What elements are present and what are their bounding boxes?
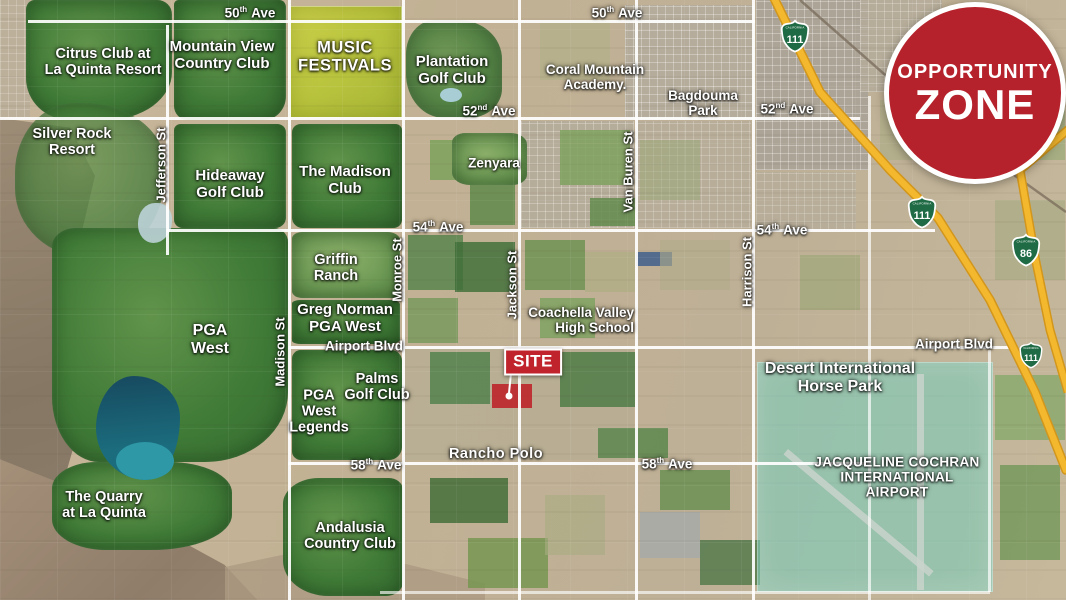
map-canvas: 50thAve 50thAve 52ndAve 52ndAve 54thAve … xyxy=(0,0,1066,600)
road-minor-east xyxy=(868,96,871,600)
label-rancho-polo: Rancho Polo xyxy=(449,446,543,462)
svg-text:CALIFORNIA: CALIFORNIA xyxy=(1017,239,1036,243)
label-citrus-club: Citrus Club atLa Quinta Resort xyxy=(45,46,162,78)
label-silver-rock: Silver RockResort xyxy=(33,126,112,158)
label-52nd-ave-west: 52ndAve xyxy=(462,103,515,118)
highway-111-shield-middle: CALIFORNIA 111 xyxy=(906,195,938,229)
label-coral-mountain-academy: Coral MountainAcademy. xyxy=(546,62,644,92)
label-quarry: The Quarryat La Quinta xyxy=(62,489,146,521)
svg-text:CALIFORNIA: CALIFORNIA xyxy=(786,25,805,29)
urban-area xyxy=(756,0,868,170)
label-mountain-view: Mountain ViewCountry Club xyxy=(170,39,275,73)
road-airport-east-edge xyxy=(988,350,991,592)
road-south-boundary xyxy=(380,591,990,594)
label-jackson-st: Jackson St xyxy=(506,251,521,320)
label-madison-club: The MadisonClub xyxy=(299,164,391,198)
opportunity-zone-badge: OPPORTUNITY ZONE xyxy=(884,2,1066,184)
label-airport-blvd-east: Airport Blvd xyxy=(915,336,993,351)
label-music-festivals: MUSICFESTIVALS xyxy=(298,39,392,76)
label-monroe-st: Monroe St xyxy=(391,238,406,302)
svg-text:111: 111 xyxy=(787,34,804,46)
label-griffin-ranch: GriffinRanch xyxy=(314,252,358,284)
road-54th-ave xyxy=(167,229,935,232)
svg-text:CALIFORNIA: CALIFORNIA xyxy=(1023,347,1039,350)
label-plantation: PlantationGolf Club xyxy=(416,54,489,88)
label-hideaway: HideawayGolf Club xyxy=(195,168,264,202)
label-zenyara: Zenyara xyxy=(468,155,520,170)
svg-text:86: 86 xyxy=(1020,248,1032,260)
label-bagdouma-park: BagdoumaPark xyxy=(668,88,738,118)
label-airport-blvd-west: Airport Blvd xyxy=(325,338,403,353)
label-pga-west: PGAWest xyxy=(191,322,229,358)
svg-text:CALIFORNIA: CALIFORNIA xyxy=(913,201,932,205)
label-coachella-valley-hs: Coachella ValleyHigh School xyxy=(528,305,634,335)
label-54th-ave-west: 54thAve xyxy=(413,219,464,234)
label-van-buren-st: Van Buren St xyxy=(622,132,637,213)
svg-text:111: 111 xyxy=(914,210,931,222)
label-madison-st: Madison St xyxy=(274,317,289,386)
label-jacqueline-cochran-airport: JACQUELINE COCHRANINTERNATIONALAIRPORT xyxy=(814,454,979,499)
label-andalusia: AndalusiaCountry Club xyxy=(304,520,396,552)
pond xyxy=(440,88,462,102)
label-palms-golf-club: PalmsGolf Club xyxy=(344,371,409,403)
label-greg-norman: Greg NormanPGA West xyxy=(297,302,393,336)
opportunity-zone-line2: ZONE xyxy=(915,85,1036,125)
label-horse-park: Desert InternationalHorse Park xyxy=(765,360,915,396)
site-parcel xyxy=(492,384,532,408)
label-58th-ave-east: 58thAve xyxy=(642,456,693,471)
label-jefferson-st: Jefferson St xyxy=(155,127,170,202)
highway-86-shield: CALIFORNIA 86 xyxy=(1010,233,1042,267)
label-58th-ave-west: 58thAve xyxy=(351,457,402,472)
site-marker-badge: SITE xyxy=(504,349,562,376)
label-harrison-st: Harrison St xyxy=(741,237,756,307)
label-54th-ave-east: 54thAve xyxy=(757,222,808,237)
lake xyxy=(116,442,174,480)
label-50th-ave-east: 50thAve xyxy=(592,5,643,20)
highway-111-shield-lower: CALIFORNIA 111 xyxy=(1018,341,1044,369)
road-madison-st xyxy=(288,0,291,600)
label-pga-west-legends: PGAWestLegends xyxy=(289,388,349,437)
svg-text:111: 111 xyxy=(1024,353,1038,363)
road-50th-ave xyxy=(28,20,755,23)
highway-111-shield-top: CALIFORNIA 111 xyxy=(779,19,811,53)
label-50th-ave-west: 50thAve xyxy=(225,5,276,20)
label-52nd-ave-east: 52ndAve xyxy=(760,101,813,116)
